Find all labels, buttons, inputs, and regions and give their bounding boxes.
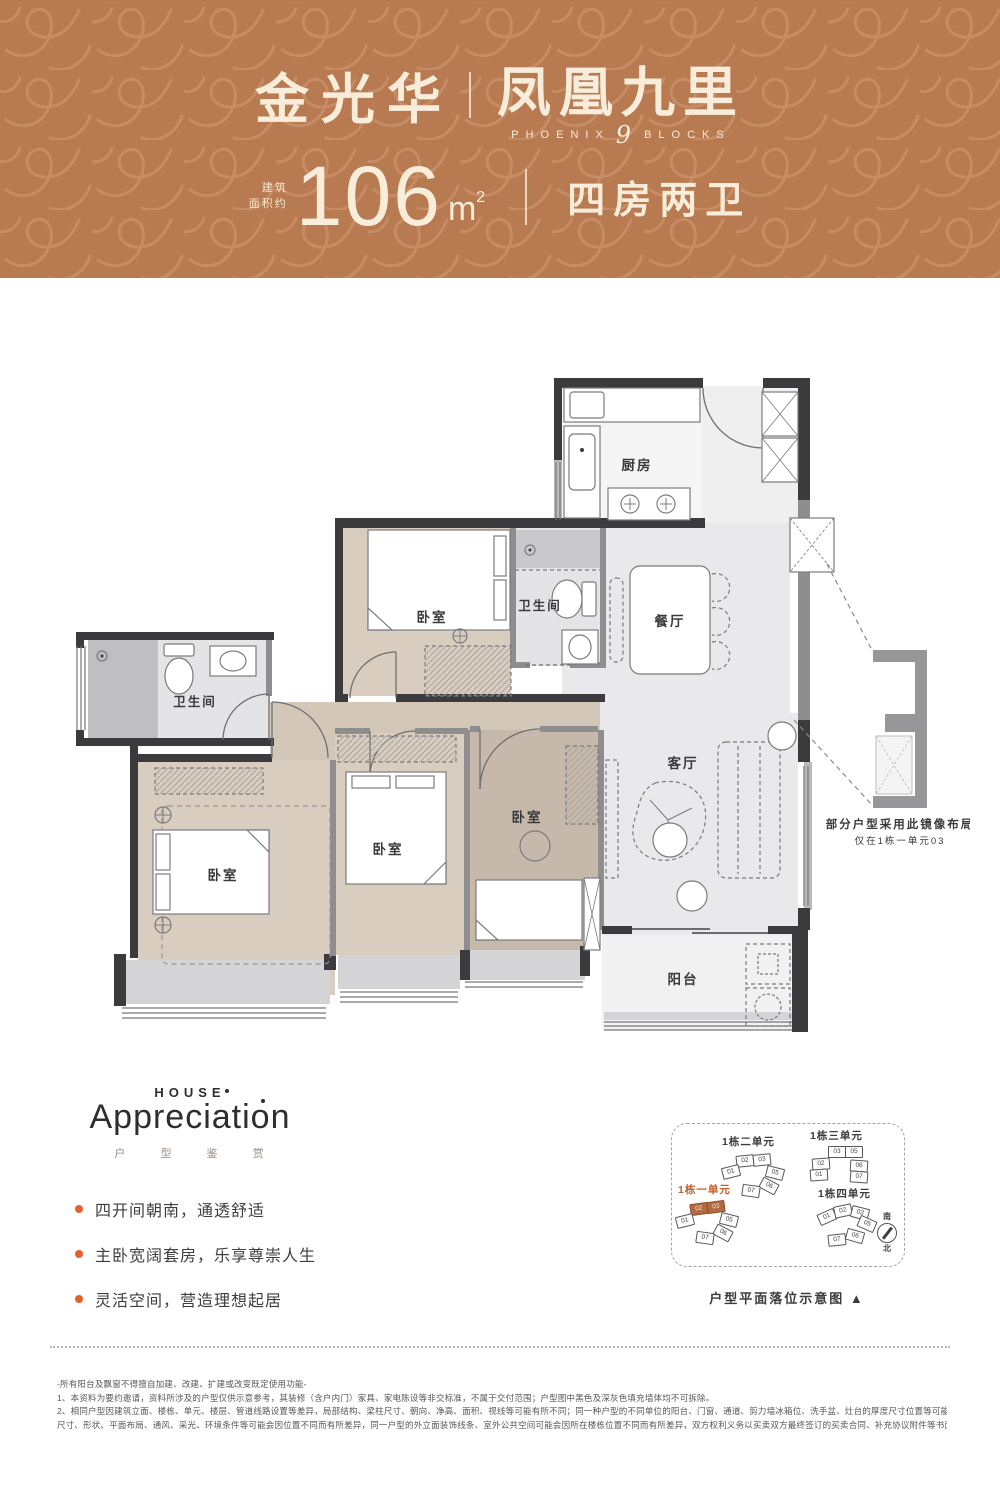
mirror-layout-annotation: 部分户型采用此镜像布局 仅在1栋一单元03	[794, 564, 970, 847]
selling-points-list: 四开间朝南，通透舒适 主卧宽阔套房，乐享尊崇人生 灵活空间，营造理想起居	[75, 1197, 375, 1311]
unit-chip: 06	[845, 1228, 866, 1244]
unit-chip: 07	[827, 1233, 846, 1247]
brand-subtitle: PHOENIX 9 BLOCKS	[511, 129, 730, 141]
site-plan-caption: 户型平面落位示意图 ▲	[671, 1288, 903, 1307]
area-prefix-line1: 建筑	[262, 182, 288, 194]
disclaimer-text: -所有阳台及飘窗不得擅自加建、改建、扩建或改变既定使用功能- 1、本资料为要约邀…	[57, 1378, 947, 1432]
cluster-label: 1栋三单元	[810, 1128, 874, 1143]
disclaimer-line: 1、本资料为要约邀请，资料所涉及的户型仅供示意参考，其装修（含户内门）家具、家电…	[57, 1392, 947, 1406]
cluster-label: 1栋四单元	[818, 1186, 882, 1201]
mirror-note-line1: 部分户型采用此镜像布局	[826, 817, 970, 831]
room-label-bedroom-3: 卧室	[512, 809, 543, 825]
appreciation-title: Appreciation	[75, 1098, 305, 1137]
room-label-bathroom-1: 卫生间	[518, 598, 562, 613]
unit-chip: 05	[845, 1146, 863, 1158]
unit-chip: 01	[721, 1164, 741, 1180]
room-label-balcony: 阳台	[668, 971, 699, 987]
brand-name-left: 金光华	[255, 55, 453, 134]
compass-needle	[882, 1226, 893, 1239]
building-cluster-3: 1栋三单元 03 05 02 01 06 07	[810, 1128, 874, 1193]
brand-sub-left: PHOENIX	[511, 129, 610, 141]
area-prefix: 建筑 面积约	[249, 181, 288, 213]
dot-decoration	[261, 1099, 265, 1103]
room-label-dining: 餐厅	[654, 613, 686, 629]
area-unit: m2	[448, 189, 485, 237]
selling-point: 灵活空间，营造理想起居	[95, 1287, 282, 1311]
page: { "colors": { "header_bg": "#b87a50", "h…	[0, 0, 1000, 1500]
area-prefix-line2: 面积约	[249, 198, 288, 210]
room-label-kitchen: 厨房	[622, 457, 653, 473]
unit-chip: 07	[850, 1170, 869, 1183]
area-value: 106	[296, 157, 442, 237]
unit-summary: 建筑 面积约 106 m2 四房两卫	[0, 157, 1000, 237]
building-cluster-1: 1栋一单元 02 03 01 05 06 07	[678, 1182, 742, 1247]
brand-sub-right: BLOCKS	[644, 129, 731, 141]
room-label-bathroom-2: 卫生间	[173, 694, 217, 709]
brand-name-right: 凤凰九里	[497, 48, 745, 127]
cluster-label: 1栋二单元	[722, 1134, 786, 1149]
room-label-bedroom-master: 卧室	[208, 867, 239, 883]
floor-plan: 部分户型采用此镜像布局 仅在1栋一单元03 厨房 餐厅 卫生间 卫生间 卧室 卧…	[70, 368, 970, 1048]
site-plan-box: 1栋二单元 02 03 01 05 06 07 1栋三单元 03 05 02 0…	[671, 1123, 905, 1267]
unit-chip: 01	[675, 1213, 695, 1229]
bullet-dot-icon	[75, 1250, 83, 1258]
layout-type-label: 四房两卫	[567, 169, 751, 224]
area-divider	[525, 169, 527, 225]
compass-north-label: 北	[876, 1244, 898, 1254]
compass-south-label: 南	[876, 1212, 898, 1222]
appreciation-heading: HOUSE Appreciation 户 型 鉴 赏	[75, 1085, 305, 1161]
logo-divider	[469, 72, 471, 118]
unit-chip: 07	[741, 1184, 760, 1198]
dot-decoration	[225, 1089, 229, 1093]
room-label-living: 客厅	[667, 755, 699, 771]
room-label-bedroom-2: 卧室	[373, 841, 404, 857]
list-item: 主卧宽阔套房，乐享尊崇人生	[75, 1242, 375, 1266]
room-label-bedroom-top: 卧室	[417, 609, 448, 625]
area-unit-sup: 2	[476, 189, 485, 206]
bullet-dot-icon	[75, 1205, 83, 1213]
unit-chip: 07	[695, 1231, 714, 1245]
compass-circle	[877, 1223, 897, 1243]
building-cluster-4: 1栋四单元 01 02 03 05 06 07	[818, 1186, 882, 1251]
header-banner: 金光华 凤凰九里 PHOENIX 9 BLOCKS 建筑 面积约 106 m2 …	[0, 0, 1000, 278]
disclaimer-line: 2、相同户型因建筑立面、楼栋、单元、楼层、管道线路设置等差异，局部结构、梁柱尺寸…	[57, 1405, 947, 1419]
disclaimer-line: -所有阳台及飘窗不得擅自加建、改建、扩建或改变既定使用功能-	[57, 1378, 947, 1392]
disclaimer-line: 尺寸、形状、平面布局、通风、采光、环境条件等可能会因位置不同而有所差异，同一户型…	[57, 1419, 947, 1433]
area-unit-m: m	[448, 190, 476, 228]
appreciation-subtitle: 户 型 鉴 赏	[75, 1145, 305, 1161]
unit-chip: 01	[810, 1168, 829, 1181]
unit-chip: 03	[828, 1146, 846, 1158]
list-item: 灵活空间，营造理想起居	[75, 1287, 375, 1311]
cluster-label-highlighted: 1栋一单元	[678, 1182, 742, 1197]
compass-icon: 南 北	[876, 1212, 898, 1253]
brand-sub-nine: 9	[616, 129, 638, 141]
selling-point: 主卧宽阔套房，乐享尊崇人生	[95, 1242, 316, 1266]
bullet-dot-icon	[75, 1295, 83, 1303]
appreciation-section: HOUSE Appreciation 户 型 鉴 赏 四开间朝南，通透舒适 主卧…	[75, 1085, 375, 1332]
dotted-divider	[50, 1346, 950, 1348]
list-item: 四开间朝南，通透舒适	[75, 1197, 375, 1221]
brand-logo: 金光华 凤凰九里 PHOENIX 9 BLOCKS	[0, 0, 1000, 141]
mirror-note-line2: 仅在1栋一单元03	[855, 835, 946, 847]
selling-point: 四开间朝南，通透舒适	[95, 1197, 265, 1221]
